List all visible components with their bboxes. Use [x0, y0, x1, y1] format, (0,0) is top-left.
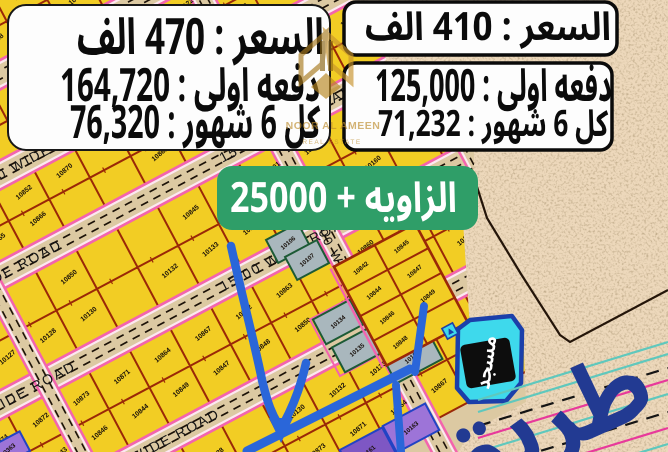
svg-text:REAL ESTATE: REAL ESTATE	[302, 139, 361, 146]
svg-text:NOOR AL AMEEN: NOOR AL AMEEN	[286, 120, 381, 132]
